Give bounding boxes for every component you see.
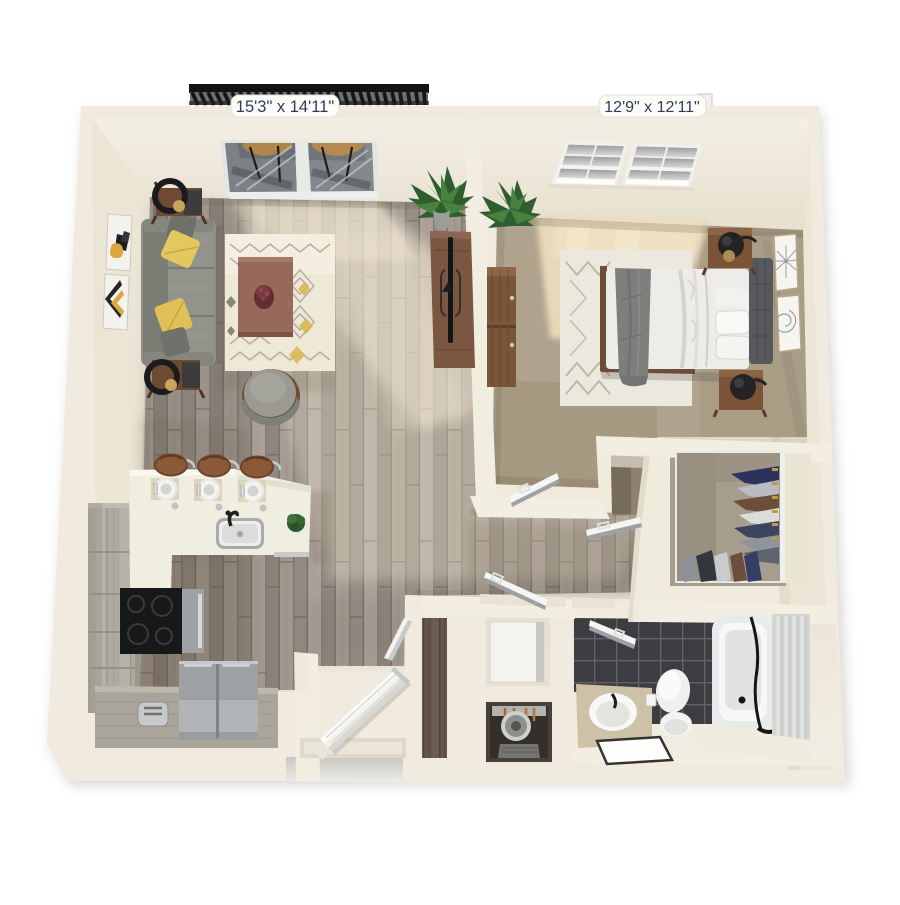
svg-text:12'9" x 12'11": 12'9" x 12'11" xyxy=(604,99,699,116)
svg-text:15'3" x 14'11": 15'3" x 14'11" xyxy=(236,98,335,116)
